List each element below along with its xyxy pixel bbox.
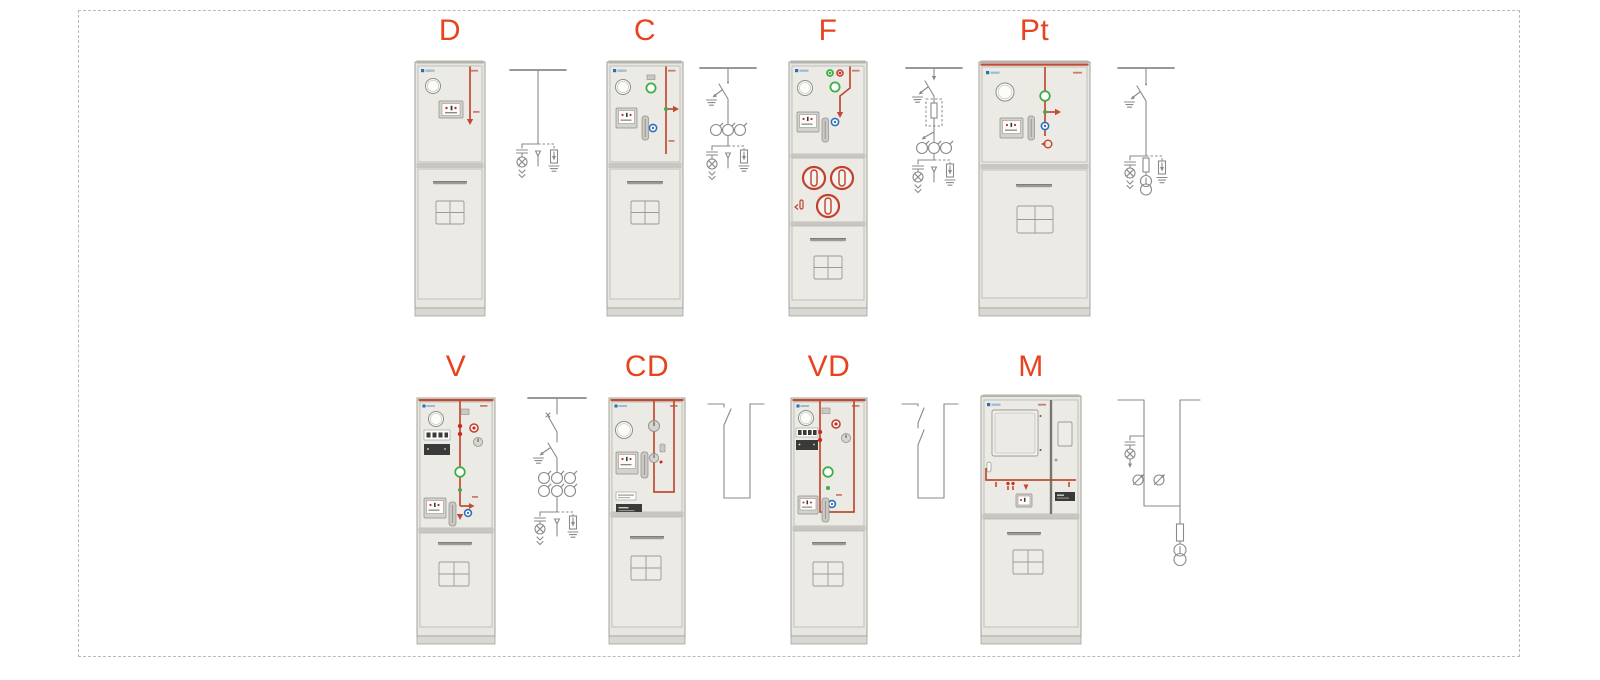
pressure-gauge (798, 81, 813, 96)
pressure-gauge (429, 412, 444, 427)
cabinet-m (980, 394, 1082, 646)
control-panel (616, 108, 637, 128)
operation-handle (642, 116, 649, 140)
control-panel (1000, 118, 1023, 138)
schematic-pt (1112, 58, 1180, 206)
type-label-f: F (788, 14, 868, 48)
type-label-pt: Pt (978, 14, 1091, 48)
pressure-gauge (616, 80, 631, 95)
schematic-vd (898, 390, 962, 525)
pressure-gauge (996, 83, 1014, 101)
cabinet-cd (608, 396, 686, 646)
inspection-window (439, 562, 469, 586)
diagram-canvas: D (0, 0, 1600, 680)
inspection-window (436, 201, 464, 224)
control-panel (797, 112, 819, 132)
cabinet-f (788, 60, 868, 318)
operation-handle (641, 452, 648, 478)
inspection-window (631, 201, 659, 224)
type-label-v: V (416, 350, 496, 384)
operation-handle (1028, 116, 1035, 140)
cabinet-c (606, 60, 684, 318)
schematic-cd (704, 390, 768, 525)
operation-handle (822, 118, 829, 142)
type-label-m: M (980, 350, 1082, 384)
operation-handle (822, 498, 829, 522)
inspection-window (631, 556, 661, 580)
schematic-v (520, 388, 592, 548)
control-panel (439, 101, 463, 118)
operation-handle (449, 502, 456, 526)
cabinet-pt (978, 60, 1091, 318)
control-panel (424, 498, 446, 518)
inspection-window (1013, 550, 1043, 574)
cabinet-v (416, 396, 496, 646)
inspection-window (813, 562, 843, 586)
cabinet-vd (790, 396, 868, 646)
cabinet-d (414, 60, 486, 318)
control-panel (798, 496, 818, 514)
pressure-gauge (426, 79, 441, 94)
schematic-f (900, 58, 968, 206)
schematic-c (694, 58, 762, 196)
metering-window (992, 410, 1042, 456)
schematic-d (502, 58, 574, 196)
inspection-window (1017, 206, 1053, 233)
control-panel (1016, 494, 1032, 507)
type-label-vd: VD (790, 350, 868, 384)
pressure-gauge (616, 422, 633, 439)
type-label-d: D (414, 14, 486, 48)
pressure-gauge (799, 411, 814, 426)
control-panel (616, 452, 638, 474)
fuse-compartment (792, 158, 864, 222)
type-label-cd: CD (608, 350, 686, 384)
inspection-window (814, 256, 842, 279)
schematic-m (1112, 386, 1204, 571)
type-label-c: C (606, 14, 684, 48)
